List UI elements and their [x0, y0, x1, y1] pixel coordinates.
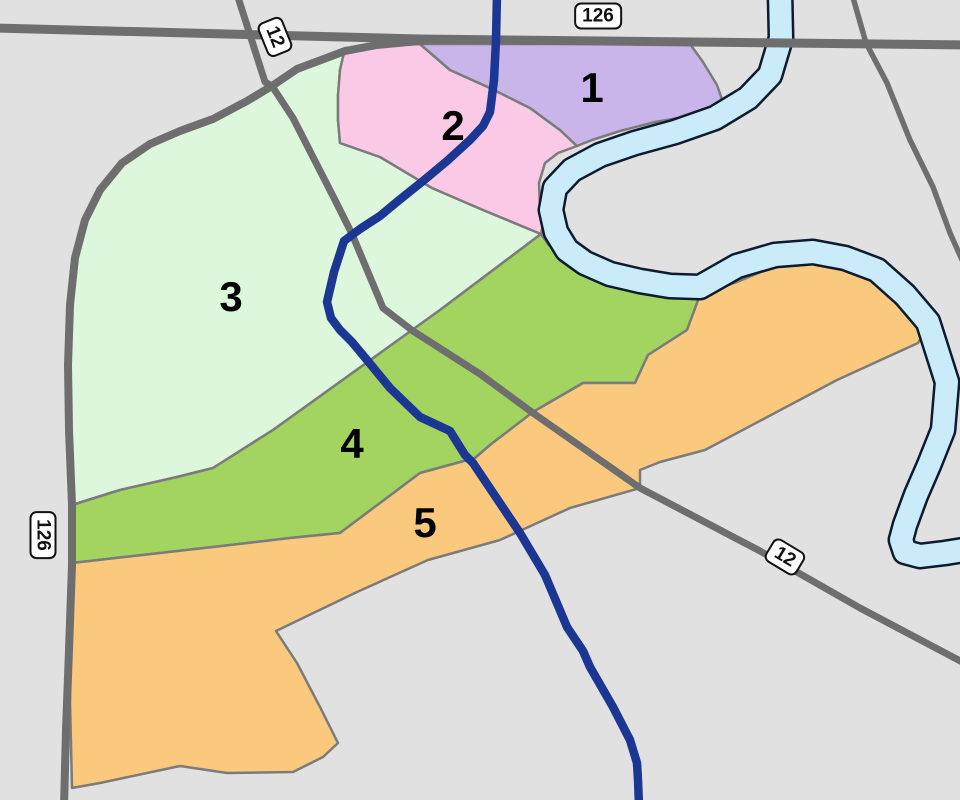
highway-shield-126-top: 126 — [574, 3, 622, 30]
district-map: 1 2 3 4 5 126 12 126 12 — [0, 0, 960, 800]
map-canvas[interactable]: 1 2 3 4 5 — [0, 0, 960, 800]
district-4-label: 4 — [340, 420, 364, 467]
highway-shield-126-left: 126 — [30, 511, 57, 559]
district-2-label: 2 — [441, 102, 464, 149]
district-1-label: 1 — [580, 64, 603, 111]
district-3-label: 3 — [219, 273, 242, 320]
district-5-label: 5 — [413, 499, 436, 546]
